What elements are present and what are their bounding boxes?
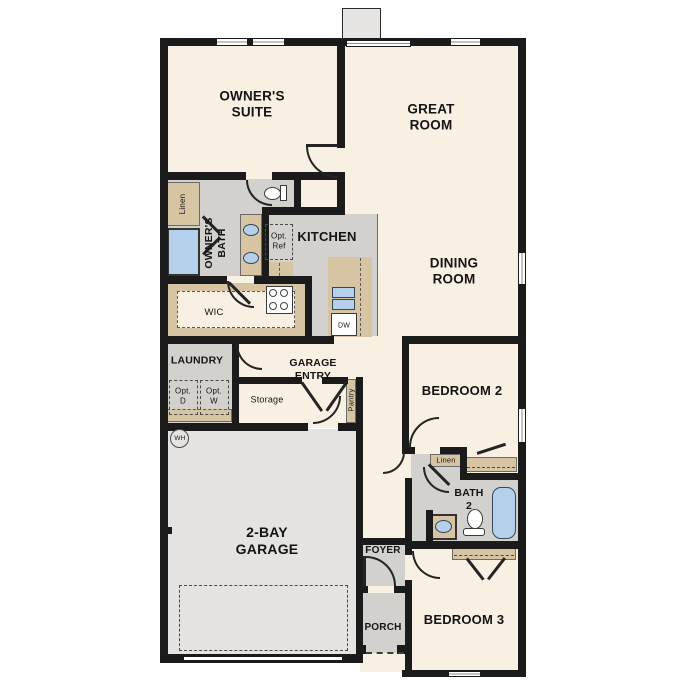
closet-label-hall-linen: Linen — [436, 455, 455, 464]
opt-ref-label: Opt. Ref — [271, 231, 287, 251]
toilet-base — [463, 528, 485, 536]
wall — [305, 276, 312, 343]
opt-dryer-label: Opt. D — [175, 386, 191, 406]
wall — [405, 538, 412, 555]
window — [216, 38, 248, 46]
window — [346, 40, 411, 47]
room-label-foyer: FOYER — [365, 545, 400, 557]
room-label-porch: PORCH — [364, 622, 401, 634]
bedroom3-closet-shelf — [452, 548, 516, 560]
bath2-sink — [435, 520, 452, 533]
window — [450, 38, 481, 46]
opt-washer-label: Opt. W — [206, 386, 222, 406]
wall — [254, 276, 312, 284]
wall — [356, 645, 366, 654]
toilet-tank — [280, 185, 287, 201]
room-label-owners-bath: OWNER'S BATH — [203, 217, 229, 268]
island-dashed-line — [360, 258, 361, 336]
bathtub — [492, 487, 516, 539]
wall — [160, 276, 227, 284]
wall — [405, 541, 519, 549]
wall — [518, 38, 526, 677]
room-label-wic: WIC — [204, 307, 223, 319]
dishwasher-label: DW — [337, 323, 351, 332]
wall — [232, 343, 239, 431]
room-label-laundry: LAUNDRY — [171, 355, 223, 368]
vanity-sink — [243, 224, 259, 236]
window — [252, 38, 285, 46]
room-label-kitchen: KITCHEN — [297, 229, 356, 245]
window — [518, 408, 526, 443]
room-label-bath2: BATH 2 — [454, 487, 483, 513]
closet-label-pantry: Pantry — [346, 389, 355, 412]
burner — [269, 289, 277, 297]
bedroom2-closet-shelf — [465, 457, 517, 472]
closet-label-linen: Linen — [178, 194, 188, 215]
closet-rod-line — [454, 555, 514, 556]
kitchen-sink — [332, 287, 355, 298]
window — [518, 252, 526, 285]
floor-plan: OWNER'S SUITE GREAT ROOM DINING ROOM KIT… — [0, 0, 687, 687]
wall — [405, 478, 412, 538]
wall — [356, 586, 368, 593]
wall — [160, 336, 334, 344]
wall — [160, 38, 168, 663]
wall — [402, 336, 519, 344]
water-heater-label: WH — [174, 435, 185, 443]
room-label-garage: 2-BAY GARAGE — [236, 524, 299, 558]
wall — [160, 527, 172, 534]
wall — [262, 207, 345, 215]
wall — [460, 473, 519, 480]
shower — [167, 228, 200, 276]
burner — [280, 289, 288, 297]
closet-rod-line — [467, 467, 515, 468]
room-label-garage-entry: GARAGE ENTRY — [289, 357, 336, 383]
wall — [402, 336, 409, 453]
burner — [269, 302, 277, 310]
fireplace-chimney — [342, 8, 381, 41]
vanity-sink — [243, 252, 259, 264]
window — [448, 671, 481, 677]
kitchen-sink — [332, 299, 355, 310]
burner — [280, 302, 288, 310]
room-label-bedroom2: BEDROOM 2 — [422, 383, 503, 399]
room-label-bedroom3: BEDROOM 3 — [424, 612, 505, 628]
room-label-storage: Storage — [251, 395, 284, 406]
room-label-owners-suite: OWNER'S SUITE — [219, 89, 284, 122]
wall — [294, 179, 301, 209]
wall — [337, 38, 345, 148]
room-label-great-room: GREAT ROOM — [407, 102, 454, 135]
wall — [394, 586, 406, 593]
wall — [405, 580, 412, 677]
room-label-dining-room: DINING ROOM — [430, 256, 478, 289]
porch-edge-line — [366, 652, 404, 654]
wall — [160, 172, 246, 180]
garage-parking-zone — [179, 585, 348, 651]
garage-door — [183, 656, 343, 661]
wall — [338, 423, 363, 431]
